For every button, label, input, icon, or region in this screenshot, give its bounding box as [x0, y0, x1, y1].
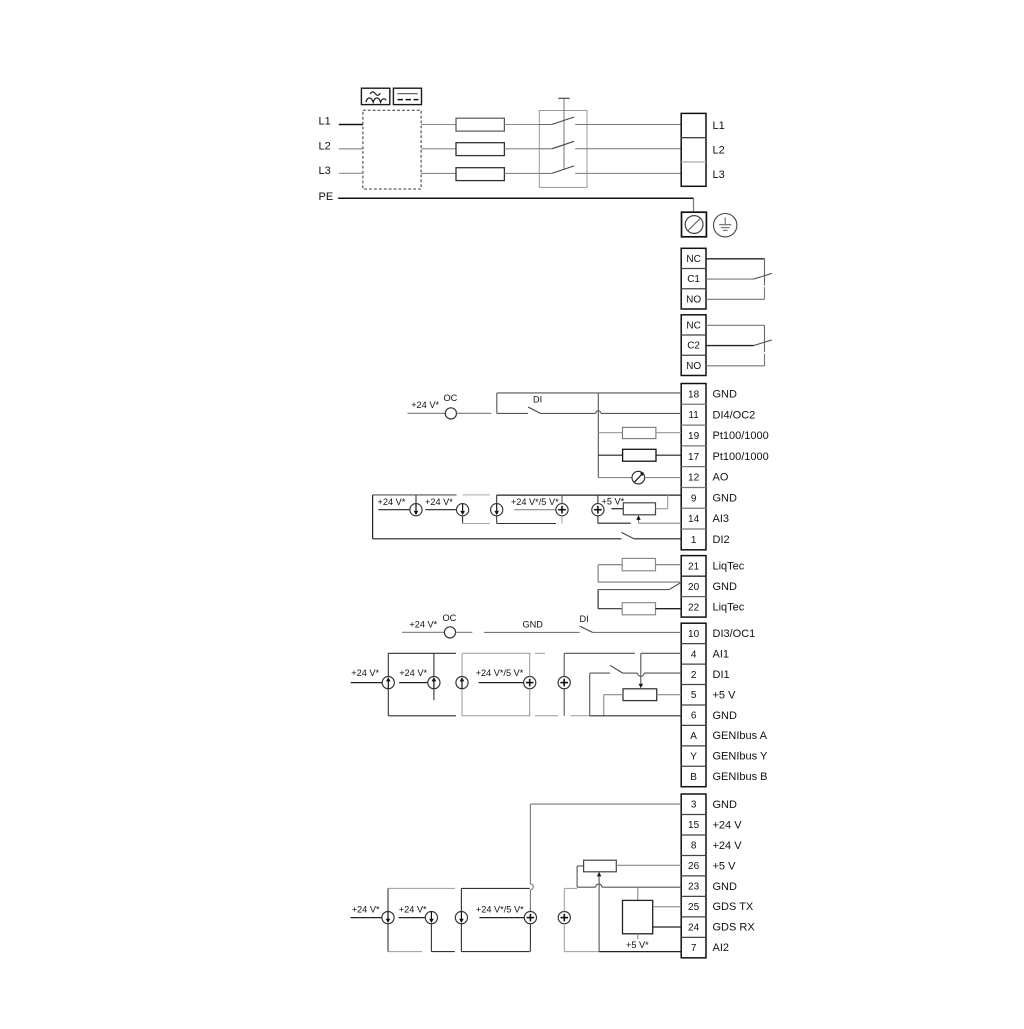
svg-text:+24 V: +24 V: [713, 840, 743, 852]
svg-text:A: A: [690, 731, 697, 742]
svg-text:+5 V: +5 V: [713, 860, 737, 872]
svg-text:+24 V*: +24 V*: [378, 497, 406, 507]
svg-text:GND: GND: [713, 581, 738, 593]
svg-text:5: 5: [691, 690, 697, 701]
svg-text:NC: NC: [686, 320, 700, 331]
svg-text:+5 V*: +5 V*: [602, 496, 625, 506]
svg-text:Pt100/1000: Pt100/1000: [713, 430, 769, 442]
svg-text:14: 14: [688, 514, 700, 525]
svg-text:L1: L1: [713, 120, 725, 132]
svg-text:+24 V*/5 V*: +24 V*/5 V*: [511, 497, 559, 507]
svg-text:2: 2: [691, 670, 697, 681]
svg-text:11: 11: [688, 410, 699, 421]
svg-text:4: 4: [691, 649, 697, 660]
svg-text:1: 1: [691, 535, 697, 546]
svg-text:L1: L1: [319, 116, 331, 128]
svg-text:GND: GND: [713, 710, 738, 722]
svg-text:+24 V*: +24 V*: [409, 620, 437, 630]
svg-text:+5 V*: +5 V*: [626, 940, 649, 950]
svg-text:GENIbus Y: GENIbus Y: [713, 751, 768, 763]
svg-text:17: 17: [688, 452, 700, 463]
svg-text:GDS RX: GDS RX: [713, 922, 756, 934]
svg-text:AI3: AI3: [713, 513, 730, 525]
svg-text:C2: C2: [687, 341, 700, 352]
svg-text:19: 19: [688, 431, 700, 442]
svg-text:L3: L3: [713, 169, 725, 181]
svg-text:8: 8: [691, 841, 697, 852]
svg-text:+24 V*/5 V*: +24 V*/5 V*: [476, 668, 524, 678]
svg-text:DI: DI: [533, 395, 542, 405]
svg-text:+24 V*: +24 V*: [399, 668, 427, 678]
svg-text:7: 7: [691, 943, 697, 954]
svg-text:24: 24: [688, 923, 700, 934]
svg-text:AO: AO: [713, 472, 729, 484]
svg-text:DI4/OC2: DI4/OC2: [713, 409, 756, 421]
svg-text:GND: GND: [713, 492, 738, 504]
svg-text:Y: Y: [690, 752, 697, 763]
svg-text:21: 21: [688, 561, 700, 572]
svg-text:OC: OC: [444, 393, 458, 403]
svg-text:L2: L2: [713, 144, 725, 156]
svg-text:C1: C1: [687, 274, 700, 285]
svg-text:GDS TX: GDS TX: [713, 901, 754, 913]
svg-text:NO: NO: [686, 294, 701, 305]
svg-text:B: B: [690, 772, 697, 783]
svg-text:NC: NC: [686, 254, 700, 265]
svg-text:NO: NO: [686, 361, 701, 372]
svg-text:+24 V*/5 V*: +24 V*/5 V*: [476, 904, 524, 914]
svg-text:Pt100/1000: Pt100/1000: [713, 451, 769, 463]
svg-text:+24 V*: +24 V*: [411, 400, 439, 410]
svg-text:LiqTec: LiqTec: [713, 560, 745, 572]
svg-text:12: 12: [688, 473, 700, 484]
svg-text:+24 V*: +24 V*: [352, 904, 380, 914]
svg-text:+24 V: +24 V: [713, 819, 743, 831]
svg-text:6: 6: [691, 711, 697, 722]
svg-text:L3: L3: [319, 165, 331, 177]
svg-text:+5 V: +5 V: [713, 689, 737, 701]
svg-text:23: 23: [688, 882, 700, 893]
svg-text:22: 22: [688, 602, 700, 613]
svg-text:+24 V*: +24 V*: [351, 668, 379, 678]
svg-text:GND: GND: [523, 620, 544, 630]
svg-text:26: 26: [688, 861, 700, 872]
svg-text:AI2: AI2: [713, 942, 730, 954]
svg-text:DI3/OC1: DI3/OC1: [713, 628, 756, 640]
svg-text:LiqTec: LiqTec: [713, 601, 745, 613]
svg-text:+24 V*: +24 V*: [399, 904, 427, 914]
svg-text:25: 25: [688, 902, 700, 913]
svg-text:OC: OC: [443, 613, 457, 623]
svg-text:10: 10: [688, 629, 700, 640]
svg-text:9: 9: [691, 493, 697, 504]
svg-text:GND: GND: [713, 881, 738, 893]
svg-text:20: 20: [688, 582, 700, 593]
svg-text:GND: GND: [713, 388, 738, 400]
svg-text:GENIbus A: GENIbus A: [713, 730, 768, 742]
svg-text:3: 3: [691, 800, 697, 811]
svg-text:+24 V*: +24 V*: [425, 497, 453, 507]
svg-text:DI2: DI2: [713, 534, 730, 546]
svg-text:18: 18: [688, 389, 700, 400]
svg-text:AI1: AI1: [713, 648, 730, 660]
svg-text:L2: L2: [319, 140, 331, 152]
svg-text:DI1: DI1: [713, 669, 730, 681]
svg-text:15: 15: [688, 820, 700, 831]
svg-text:GENIbus B: GENIbus B: [713, 771, 768, 783]
svg-text:GND: GND: [713, 799, 738, 811]
svg-text:PE: PE: [319, 191, 334, 203]
svg-text:DI: DI: [580, 614, 589, 624]
